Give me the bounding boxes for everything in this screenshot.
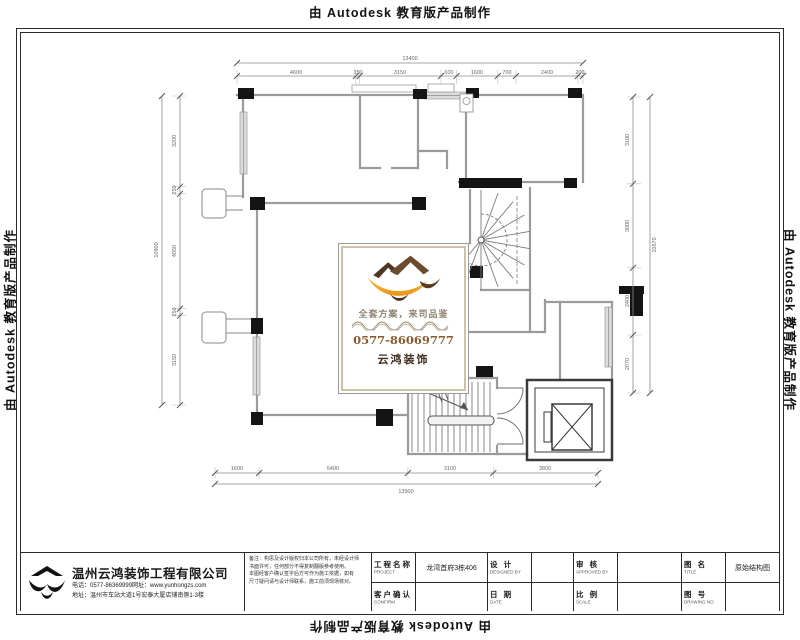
watermark-card: 全套方案，来司品鉴 0577-86069777 云鸿装饰 (338, 243, 469, 394)
field-label-project: 工程名称PROJECT (371, 553, 415, 582)
field-label-confirm: 客户确认CONFIRM (371, 582, 415, 611)
watermark-slogan: 全套方案，来司品鉴 (358, 307, 448, 320)
field-label-scale: 比 例SCALE (573, 582, 617, 611)
field-value-project: 龙湾首府3栋406 (415, 553, 487, 582)
company-logo-icon (27, 564, 67, 600)
gold-swoosh-icon (367, 277, 427, 296)
autodesk-banner-top: 由 Autodesk 教育版产品制作 (0, 2, 800, 21)
remarks-line: 书面许可，任何部分不得复制翻版参考使用。 (249, 564, 367, 572)
title-block: 温州云鸿装饰工程有限公司 电话：0577-86369999网址：www.yunh… (21, 552, 779, 611)
field-value-designer (531, 553, 573, 582)
field-label-date: 日 期DATE (487, 582, 531, 611)
autodesk-banner-right: 由 Autodesk 教育版产品制作 (782, 229, 800, 411)
field-value-drawing-no (725, 582, 779, 611)
remarks-cell: 备注：构思及设计版权归本公司所有，未经设计师 书面许可，任何部分不得复制翻版参考… (244, 553, 371, 611)
remarks-line: 尺寸疑问请与设计师联系，施工前须现场核对。 (249, 579, 367, 587)
field-value-date (531, 582, 573, 611)
watermark-logo (362, 252, 446, 306)
field-value-approver (617, 553, 681, 582)
company-address-line: 地址：温州市车站大道1号宏泰大厦店铺南侧1-3楼 (72, 592, 228, 602)
field-label-approver: 审 核APPROVED BY (573, 553, 617, 582)
company-cell: 温州云鸿装饰工程有限公司 电话：0577-86369999网址：www.yunh… (21, 553, 244, 611)
company-name: 温州云鸿装饰工程有限公司 (72, 563, 228, 582)
watermark-brand: 云鸿装饰 (378, 351, 430, 367)
field-label-drawing-title: 图 名TITLE (681, 553, 725, 582)
ornament-divider-icon (350, 320, 458, 331)
field-value-drawing-title: 原始结构图 (725, 553, 779, 582)
company-phone-line: 电话：0577-86369999网址：www.yunhongzs.com (72, 582, 228, 592)
field-label-drawing-no: 图 号DRAWING NO (681, 582, 725, 611)
autodesk-banner-bottom: 由 Autodesk 教育版产品制作 (0, 618, 800, 637)
autodesk-banner-left: 由 Autodesk 教育版产品制作 (0, 229, 19, 411)
title-block-grid: 工程名称PROJECT 龙湾首府3栋406 设 计DESIGNED BY 审 核… (371, 553, 779, 611)
watermark-phone: 0577-86069777 (353, 333, 454, 347)
field-value-scale (617, 582, 681, 611)
remarks-line: 本图经客户确认签字后方可作为施工依据，如有 (249, 571, 367, 579)
bird-icon (419, 278, 440, 288)
field-value-confirm (415, 582, 487, 611)
roof-right-icon (390, 256, 429, 276)
remarks-line: 备注：构思及设计版权归本公司所有，未经设计师 (249, 556, 367, 564)
field-label-designer: 设 计DESIGNED BY (487, 553, 531, 582)
